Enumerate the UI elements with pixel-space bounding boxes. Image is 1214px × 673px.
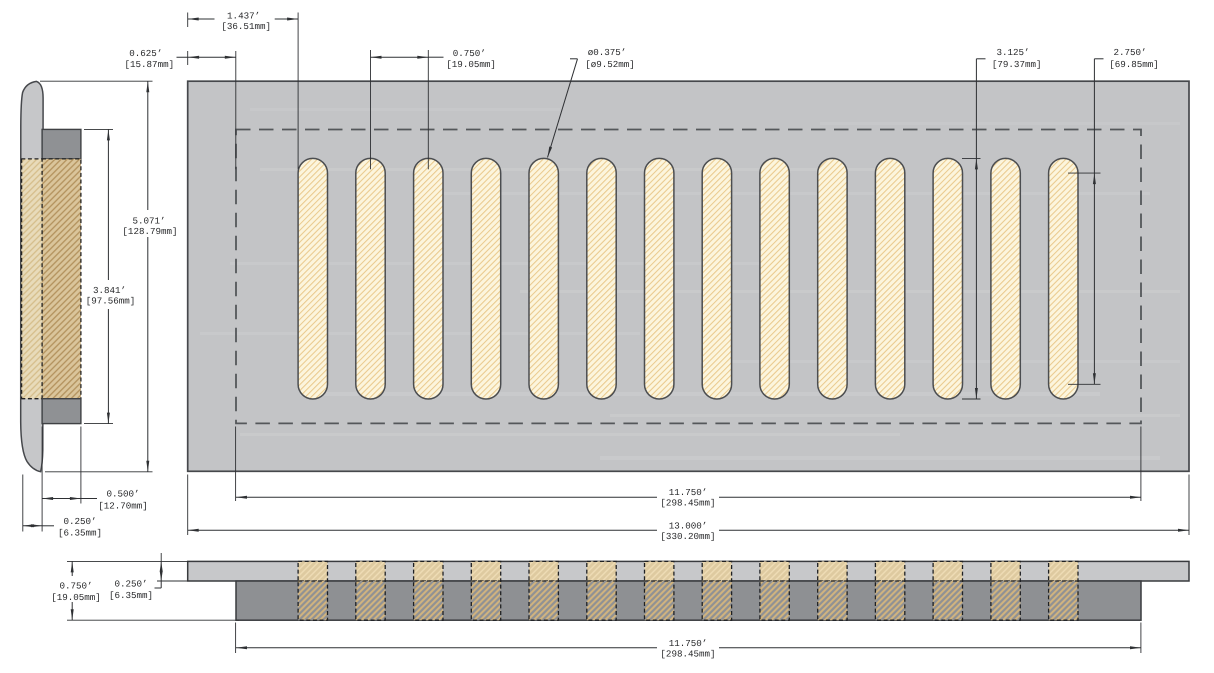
svg-text:[15.87mm]: [15.87mm] [124, 59, 174, 70]
svg-text:ø0.375’: ø0.375’ [588, 47, 627, 58]
svg-text:[298.45mm]: [298.45mm] [660, 649, 715, 660]
svg-text:[36.51mm]: [36.51mm] [221, 21, 271, 32]
svg-text:0.250’: 0.250’ [114, 578, 147, 589]
svg-text:3.125’: 3.125’ [996, 47, 1029, 58]
svg-text:[12.70mm]: [12.70mm] [98, 500, 148, 511]
svg-text:3.841’: 3.841’ [93, 285, 126, 296]
svg-text:11.750’: 11.750’ [669, 638, 708, 649]
svg-text:[19.05mm]: [19.05mm] [446, 59, 496, 70]
svg-text:[330.20mm]: [330.20mm] [660, 531, 715, 542]
svg-text:[6.35mm]: [6.35mm] [109, 590, 153, 601]
svg-text:13.000’: 13.000’ [669, 520, 708, 531]
svg-text:[69.85mm]: [69.85mm] [1109, 59, 1159, 70]
svg-text:0.250’: 0.250’ [63, 516, 96, 527]
svg-text:11.750’: 11.750’ [669, 487, 708, 498]
svg-text:[19.05mm]: [19.05mm] [51, 592, 101, 603]
svg-text:2.750’: 2.750’ [1113, 47, 1146, 58]
svg-text:[79.37mm]: [79.37mm] [992, 59, 1042, 70]
svg-text:[128.79mm]: [128.79mm] [122, 226, 177, 237]
svg-text:1.437’: 1.437’ [227, 10, 260, 21]
svg-text:0.625’: 0.625’ [129, 48, 162, 59]
svg-text:[298.45mm]: [298.45mm] [660, 498, 715, 509]
svg-text:[6.35mm]: [6.35mm] [58, 528, 102, 539]
svg-text:0.750’: 0.750’ [59, 580, 92, 591]
svg-text:[97.56mm]: [97.56mm] [86, 296, 136, 307]
svg-text:0.500’: 0.500’ [106, 489, 139, 500]
svg-text:[ø9.52mm]: [ø9.52mm] [585, 59, 635, 70]
svg-text:0.750’: 0.750’ [453, 48, 486, 59]
svg-text:5.071’: 5.071’ [132, 215, 165, 226]
